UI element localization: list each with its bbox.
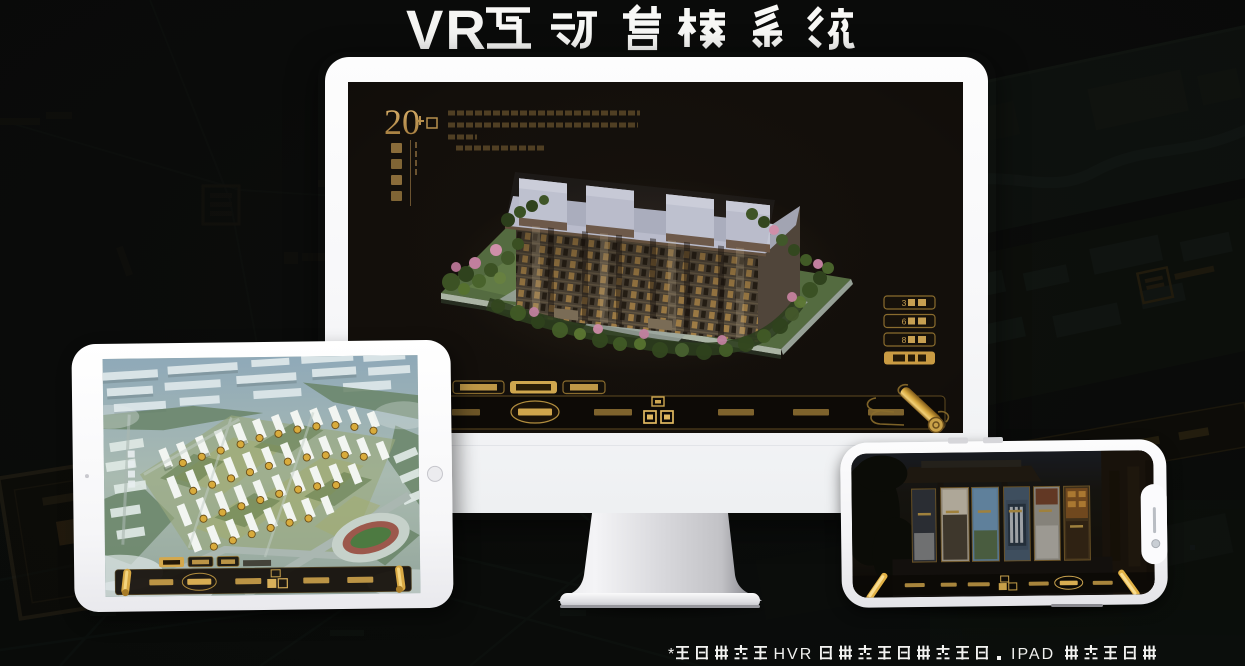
svg-text:6: 6 xyxy=(902,317,907,327)
svg-text:20: 20 xyxy=(384,102,420,142)
svg-text:IPAD: IPAD xyxy=(1011,646,1055,663)
svg-text:*: * xyxy=(668,646,674,663)
svg-text:3: 3 xyxy=(902,298,907,308)
svg-text:HVR: HVR xyxy=(774,646,814,663)
svg-text:8: 8 xyxy=(902,335,907,345)
